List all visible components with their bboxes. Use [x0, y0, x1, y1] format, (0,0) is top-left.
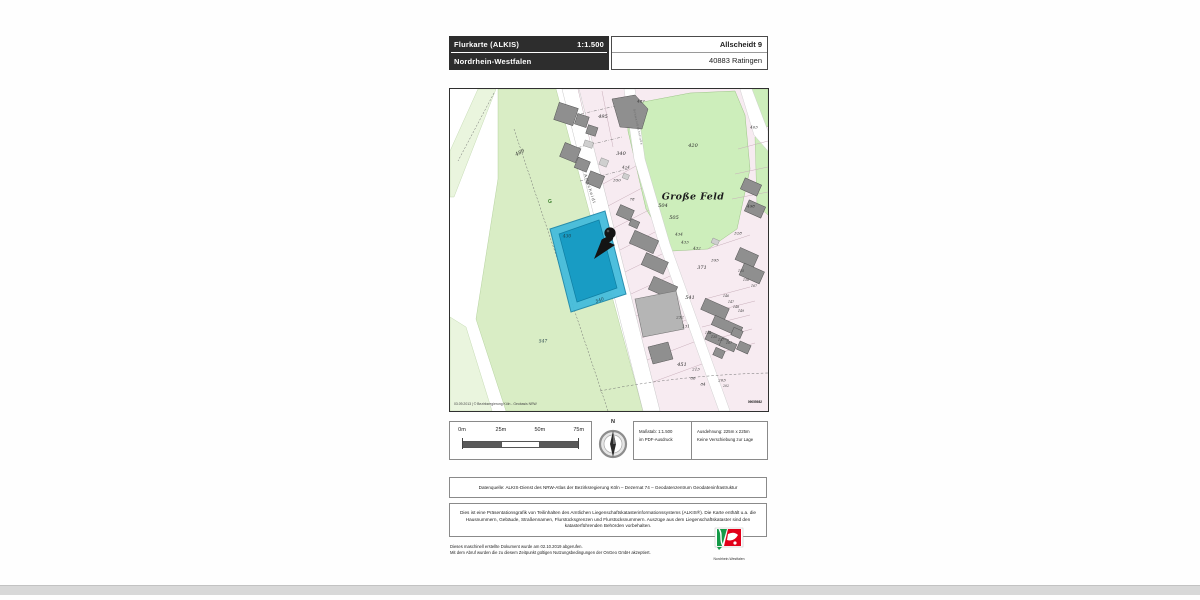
north-label: N — [611, 419, 615, 425]
scan-edge-strip — [0, 585, 1200, 595]
compass-rose: N — [595, 420, 631, 462]
large-building — [635, 291, 684, 337]
nrw-logo-icon — [714, 527, 744, 551]
scale-tick-label: 75m — [573, 427, 584, 433]
extent-info-line1: Ausdehnung: 225m x 225m — [697, 428, 763, 436]
header-title-block: Flurkarte (ALKIS) 1:1.500 Nordrhein-West… — [449, 36, 609, 70]
extent-info-cell: Ausdehnung: 225m x 225m Keine Verschiebu… — [692, 422, 767, 459]
document-title: Flurkarte (ALKIS) — [454, 40, 519, 49]
scale-info-line2: im PDF-Ausdruck — [639, 436, 687, 444]
map-frame: 489495487403420340424350Große Feld498785… — [449, 88, 769, 412]
footer-note-line2: Mit dem Abruf wurden die zu diesem Zeitp… — [450, 550, 700, 556]
nrw-logo-caption: Nordrhein-Westfalen — [712, 557, 746, 561]
map-sheet-number: 09055982 — [748, 400, 762, 404]
map-scale: 1:1.500 — [577, 40, 604, 49]
address-city: 40883 Ratingen — [709, 56, 762, 65]
footer-note: Dieses maschinell erstellte Dokument wur… — [450, 544, 700, 557]
document-page: Flurkarte (ALKIS) 1:1.500 Nordrhein-West… — [0, 0, 1200, 600]
scale-bar: 0m25m50m75m — [449, 421, 592, 460]
scale-info-line1: Maßstab: 1:1.500 — [639, 428, 687, 436]
extent-info-line2: Keine Verschiebung zur Lage — [697, 436, 763, 444]
nrw-logo: Nordrhein-Westfalen — [712, 527, 746, 561]
address-street: Allscheidt 9 — [720, 40, 762, 49]
compass-icon — [595, 420, 631, 462]
cadastral-map — [450, 89, 768, 411]
state-name: Nordrhein-Westfalen — [454, 57, 531, 66]
scale-bar-segments — [462, 441, 579, 448]
meadow-band — [450, 89, 496, 197]
map-copyright: 03.09.2013 | © Bezirksregierung Köln - G… — [454, 402, 537, 406]
scale-tick-label: 25m — [496, 427, 507, 433]
map-info-box: Maßstab: 1:1.500 im PDF-Ausdruck Ausdehn… — [633, 421, 768, 460]
scale-end-tick — [462, 438, 463, 449]
scale-tick-label: 50m — [534, 427, 545, 433]
header-address-block: Allscheidt 9 40883 Ratingen — [611, 36, 768, 70]
scale-info-cell: Maßstab: 1:1.500 im PDF-Ausdruck — [634, 422, 692, 459]
scale-end-tick — [578, 438, 579, 449]
data-source-box: Datenquelle: ALKIS-Dienst des NRW-Atlas … — [449, 477, 767, 498]
scale-tick-label: 0m — [458, 427, 466, 433]
